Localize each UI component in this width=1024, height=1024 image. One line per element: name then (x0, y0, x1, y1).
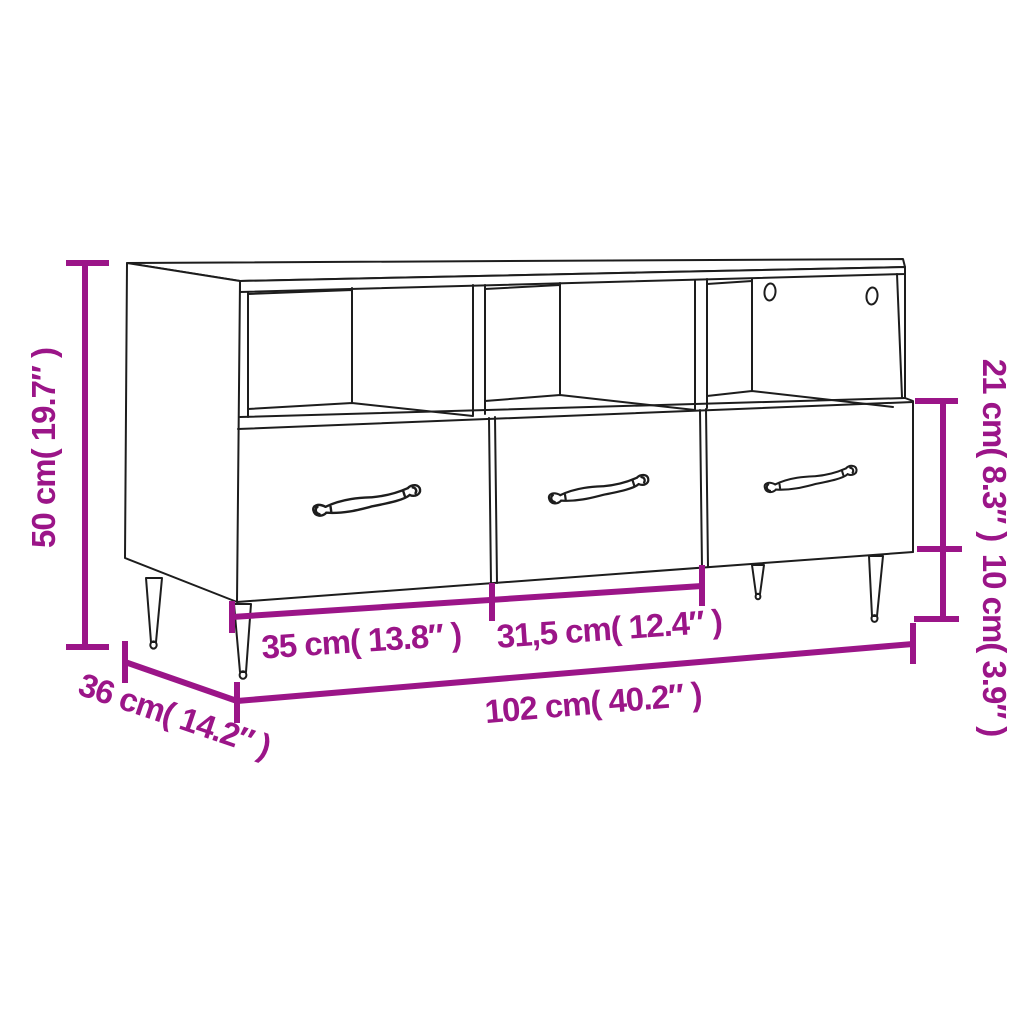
leg-height-label: 10 cm( 3.9″ ) (976, 554, 1013, 737)
compartment-height-label: 21 cm( 8.3″ ) (976, 359, 1013, 542)
height-label: 50 cm( 19.7″ ) (25, 348, 62, 548)
tv-cabinet-dimension-figure: 50 cm( 19.7″ ) 21 cm( 8.3″ ) 10 cm( 3.9″… (0, 0, 1024, 1024)
dimension-diagram: 50 cm( 19.7″ ) 21 cm( 8.3″ ) 10 cm( 3.9″… (0, 0, 1024, 1024)
left-side-panel (125, 263, 240, 602)
